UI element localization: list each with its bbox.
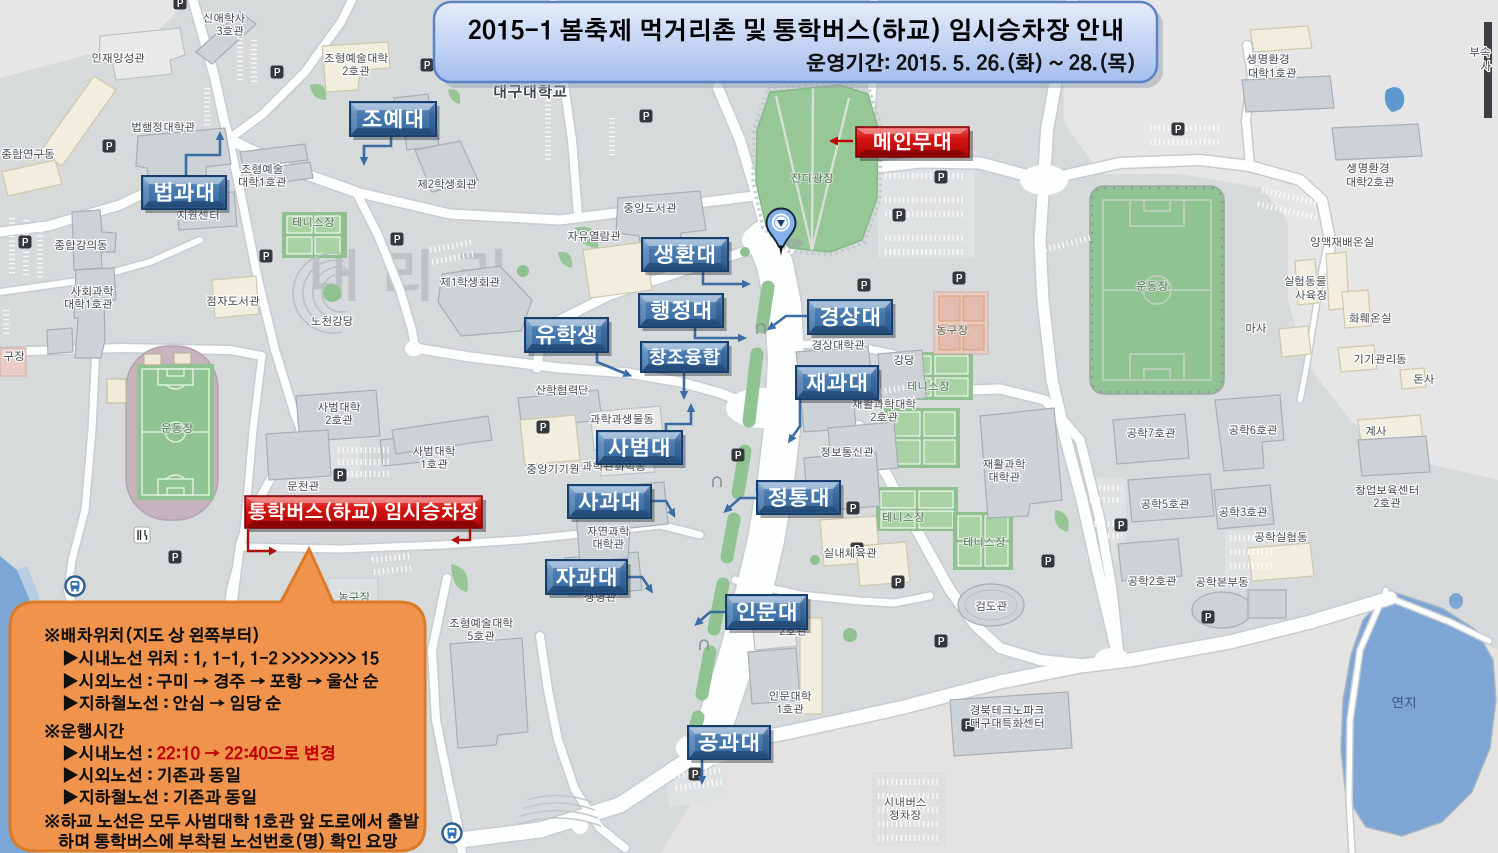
svg-text:중앙도서관: 중앙도서관 [623, 202, 677, 215]
svg-text:1호관: 1호관 [420, 459, 448, 471]
svg-text:공학본부동: 공학본부동 [1195, 576, 1249, 589]
svg-text:▶지하철노선 : 안심 → 임당 순: ▶지하철노선 : 안심 → 임당 순 [62, 694, 282, 713]
svg-text:3호관: 3호관 [215, 26, 244, 38]
svg-text:사회과학: 사회과학 [71, 285, 114, 298]
svg-text:창조융합: 창조융합 [649, 347, 721, 367]
svg-text:공학2호관: 공학2호관 [1127, 575, 1176, 588]
svg-text:유학생: 유학생 [535, 325, 598, 348]
svg-text:▶시외노선 : 기존과 동일: ▶시외노선 : 기존과 동일 [62, 766, 241, 785]
svg-text:재과대: 재과대 [806, 372, 869, 395]
svg-text:생명환경: 생명환경 [1347, 162, 1390, 175]
svg-text:실험동물: 실험동물 [1284, 275, 1327, 288]
svg-text:종합연구동: 종합연구동 [1, 149, 55, 161]
svg-text:대학1호관: 대학1호관 [237, 176, 286, 189]
svg-text:행정대: 행정대 [650, 300, 713, 323]
svg-text:대학1호관: 대학1호관 [1247, 67, 1296, 80]
svg-text:법행정대학관: 법행정대학관 [131, 121, 195, 134]
svg-text:테니스장: 테니스장 [292, 217, 335, 229]
svg-text:▶시내노선 위치 : 1, 1-1, 1-2 >>>>>>>: ▶시내노선 위치 : 1, 1-1, 1-2 >>>>>>>> 15 [62, 649, 379, 668]
svg-text:잔디광장: 잔디광장 [791, 172, 834, 185]
svg-text:공학7호관: 공학7호관 [1126, 427, 1175, 440]
svg-text:대학관: 대학관 [592, 538, 624, 551]
svg-text:대구대특화센터: 대구대특화센터 [970, 718, 1045, 730]
svg-text:점자도서관: 점자도서관 [206, 295, 260, 308]
svg-text:대학2호관: 대학2호관 [1345, 176, 1394, 189]
svg-text:2호관: 2호관 [342, 66, 370, 78]
svg-text:대학1호관: 대학1호관 [63, 298, 112, 311]
svg-text:과학과생물동: 과학과생물동 [590, 413, 654, 426]
svg-text:연지: 연지 [1391, 696, 1416, 710]
svg-text:인문대학: 인문대학 [769, 690, 812, 703]
svg-text:조예대: 조예대 [362, 109, 425, 132]
svg-text:하며 통학버스에 부착된 노선번호(명) 확인 요망: 하며 통학버스에 부착된 노선번호(명) 확인 요망 [58, 832, 398, 851]
svg-text:중앙기기원: 중앙기기원 [526, 463, 580, 476]
svg-text:공학3호관: 공학3호관 [1218, 506, 1267, 519]
svg-text:농구장: 농구장 [936, 324, 968, 337]
svg-text:산학협력단: 산학협력단 [534, 384, 589, 397]
svg-text:검도관: 검도관 [975, 601, 1007, 613]
svg-text:운동장: 운동장 [161, 423, 193, 435]
svg-text:메인무대: 메인무대 [872, 132, 952, 154]
svg-text:2호관: 2호관 [1373, 498, 1401, 510]
svg-text:사: 사 [1481, 61, 1492, 73]
svg-text:자유열람관: 자유열람관 [567, 230, 621, 243]
svg-text:실내체육관: 실내체육관 [823, 548, 877, 560]
svg-text:공과대: 공과대 [698, 732, 761, 755]
svg-text:정통대: 정통대 [767, 487, 830, 510]
svg-text:화훼온실: 화훼온실 [1349, 313, 1392, 325]
svg-text:노천강당: 노천강당 [311, 315, 354, 328]
svg-text:통학버스(하교) 임시승차장: 통학버스(하교) 임시승차장 [248, 502, 479, 523]
svg-text:양액재배온실: 양액재배온실 [1310, 236, 1374, 249]
svg-text:경상대: 경상대 [819, 307, 882, 330]
svg-text:경북테크노파크: 경북테크노파크 [970, 705, 1045, 717]
svg-text:※하교 노선은 모두 사범대학 1호관 앞 도로에서 출발: ※하교 노선은 모두 사범대학 1호관 앞 도로에서 출발 [44, 812, 419, 831]
svg-text:사과대: 사과대 [578, 491, 641, 514]
svg-text:신애학사: 신애학사 [203, 12, 246, 25]
svg-text:창업보육센터: 창업보육센터 [1355, 484, 1419, 497]
svg-text:구장: 구장 [3, 351, 25, 363]
svg-text:테니스장: 테니스장 [882, 512, 925, 524]
svg-text:공학5호관: 공학5호관 [1140, 498, 1189, 511]
svg-text:운동장: 운동장 [1136, 281, 1168, 293]
svg-text:▶시내노선 : 22:10 → 22:40으로 변경: ▶시내노선 : 22:10 → 22:40으로 변경 [62, 744, 336, 763]
svg-text:1호관: 1호관 [776, 704, 804, 716]
svg-text:경상대학관: 경상대학관 [811, 339, 865, 352]
svg-text:5호관: 5호관 [467, 631, 495, 643]
svg-text:운영기간: 2015. 5. 26.(화) ~ 28.(목): 운영기간: 2015. 5. 26.(화) ~ 28.(목) [806, 52, 1136, 75]
svg-text:마사: 마사 [1245, 323, 1267, 335]
svg-text:강당: 강당 [893, 354, 915, 367]
svg-text:▶시외노선 : 구미 → 경주 → 포항 → 울산 순: ▶시외노선 : 구미 → 경주 → 포항 → 울산 순 [62, 672, 379, 691]
svg-text:인문대: 인문대 [735, 602, 798, 625]
svg-text:대학관: 대학관 [988, 471, 1020, 484]
svg-text:종합강의동: 종합강의동 [54, 240, 108, 252]
svg-text:2호관: 2호관 [325, 415, 353, 427]
svg-text:문천관: 문천관 [287, 481, 319, 493]
svg-text:2호관: 2호관 [870, 412, 898, 424]
svg-text:돈사: 돈사 [1413, 374, 1435, 386]
svg-text:사범대학: 사범대학 [318, 401, 361, 414]
svg-text:자과대: 자과대 [555, 567, 618, 590]
svg-text:제2학생회관: 제2학생회관 [417, 178, 477, 191]
svg-text:공학6호관: 공학6호관 [1228, 424, 1277, 437]
svg-text:조형예술대학: 조형예술대학 [324, 52, 388, 65]
svg-text:정차장: 정차장 [889, 809, 921, 822]
svg-text:사육장: 사육장 [1295, 290, 1327, 302]
svg-text:법과대: 법과대 [153, 182, 216, 205]
svg-text:정보통신관: 정보통신관 [820, 446, 874, 459]
svg-text:사범대: 사범대 [608, 437, 671, 460]
svg-text:시내버스: 시내버스 [884, 797, 927, 809]
svg-text:▶지하철노선 : 기존과 동일: ▶지하철노선 : 기존과 동일 [62, 788, 257, 807]
svg-text:사범대학: 사범대학 [413, 445, 456, 458]
svg-text:계사: 계사 [1365, 426, 1387, 438]
svg-text:생환대: 생환대 [654, 244, 717, 267]
svg-text:기기관리동: 기기관리동 [1353, 354, 1407, 366]
svg-text:부속: 부속 [1469, 47, 1490, 59]
svg-text:※운행시간: ※운행시간 [44, 722, 125, 741]
svg-text:테니스장: 테니스장 [963, 537, 1006, 549]
svg-text:조형예술: 조형예술 [241, 163, 284, 176]
svg-text:인재양성관: 인재양성관 [91, 52, 145, 65]
svg-text:조형예술대학: 조형예술대학 [449, 617, 513, 630]
svg-text:※배차위치(지도 상 왼쪽부터): ※배차위치(지도 상 왼쪽부터) [44, 626, 260, 645]
svg-text:재활과학: 재활과학 [983, 458, 1026, 471]
svg-text:공학실험동: 공학실험동 [1254, 531, 1308, 544]
svg-text:생명환경: 생명환경 [1247, 53, 1290, 66]
svg-text:2015-1 봄축제 먹거리촌 및 통학버스(하교) 임시승: 2015-1 봄축제 먹거리촌 및 통학버스(하교) 임시승차장 안내 [467, 17, 1124, 44]
svg-text:제1학생회관: 제1학생회관 [440, 276, 500, 289]
svg-text:테니스장: 테니스장 [907, 381, 950, 393]
svg-text:자연과학: 자연과학 [587, 525, 630, 538]
